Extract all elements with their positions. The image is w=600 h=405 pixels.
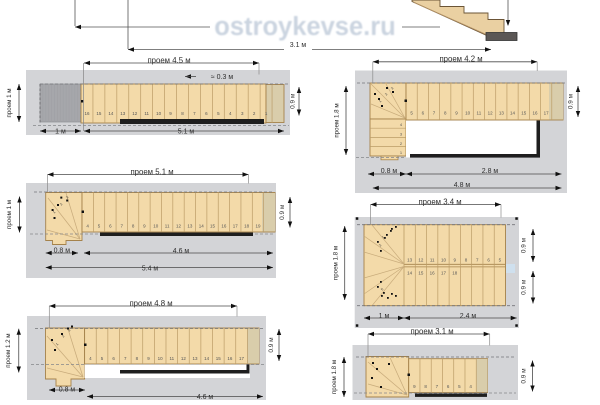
svg-text:проем 3.1 м: проем 3.1 м xyxy=(410,327,453,336)
svg-text:14: 14 xyxy=(199,224,205,229)
svg-text:проем 1.8 м: проем 1.8 м xyxy=(333,246,340,280)
svg-text:15: 15 xyxy=(418,271,424,276)
svg-text:0.9 м: 0.9 м xyxy=(521,279,528,295)
svg-text:0.8 м: 0.8 м xyxy=(54,248,71,255)
svg-text:12: 12 xyxy=(181,356,187,361)
svg-text:проем 1.8 м: проем 1.8 м xyxy=(334,103,341,137)
svg-text:1 м: 1 м xyxy=(55,129,66,136)
svg-text:0.9 м: 0.9 м xyxy=(521,368,528,384)
svg-text:проем 4.8 м: проем 4.8 м xyxy=(129,299,172,308)
svg-text:11: 11 xyxy=(169,356,174,361)
svg-text:14: 14 xyxy=(510,111,516,116)
svg-text:2.8 м: 2.8 м xyxy=(482,168,499,175)
svg-text:15: 15 xyxy=(521,111,527,116)
svg-text:5.4 м: 5.4 м xyxy=(142,266,159,273)
svg-text:16: 16 xyxy=(227,356,233,361)
svg-text:1 м: 1 м xyxy=(379,313,390,320)
svg-text:0.9 м: 0.9 м xyxy=(279,204,286,220)
svg-text:11: 11 xyxy=(165,224,170,229)
svg-text:10: 10 xyxy=(153,224,159,229)
svg-text:0.9 м: 0.9 м xyxy=(290,93,297,109)
svg-text:16: 16 xyxy=(221,224,227,229)
svg-text:15: 15 xyxy=(210,224,216,229)
svg-text:10: 10 xyxy=(156,111,162,116)
svg-text:17: 17 xyxy=(239,356,245,361)
svg-text:11: 11 xyxy=(430,258,435,263)
svg-text:12: 12 xyxy=(488,111,494,116)
svg-text:16: 16 xyxy=(84,111,90,116)
svg-text:проем 5.1 м: проем 5.1 м xyxy=(130,167,173,176)
svg-text:4.6 м: 4.6 м xyxy=(197,394,214,400)
svg-text:13: 13 xyxy=(193,356,199,361)
svg-text:12: 12 xyxy=(132,111,138,116)
svg-text:5.1 м: 5.1 м xyxy=(178,129,195,136)
svg-text:16: 16 xyxy=(430,271,436,276)
svg-text:0.8 м: 0.8 м xyxy=(59,387,76,394)
svg-text:15: 15 xyxy=(216,356,222,361)
svg-text:17: 17 xyxy=(233,224,239,229)
svg-text:17: 17 xyxy=(544,111,550,116)
svg-text:13: 13 xyxy=(187,224,193,229)
svg-text:проем 1 м: проем 1 м xyxy=(6,88,13,117)
svg-text:10: 10 xyxy=(465,111,471,116)
svg-text:проем 3.4 м: проем 3.4 м xyxy=(418,197,461,206)
svg-text:4.8 м: 4.8 м xyxy=(454,182,471,189)
svg-text:0.9 м: 0.9 м xyxy=(568,93,575,109)
svg-text:14: 14 xyxy=(204,356,210,361)
svg-text:проем 4.2 м: проем 4.2 м xyxy=(439,55,482,64)
svg-text:10: 10 xyxy=(441,258,447,263)
svg-text:2.4 м: 2.4 м xyxy=(460,313,477,320)
svg-text:13: 13 xyxy=(120,111,126,116)
svg-text:16: 16 xyxy=(532,111,538,116)
svg-text:14: 14 xyxy=(108,111,114,116)
svg-text:0.9 м: 0.9 м xyxy=(521,237,528,253)
svg-text:3.1 м: 3.1 м xyxy=(290,42,307,49)
svg-text:проем 4.5 м: проем 4.5 м xyxy=(147,56,190,65)
svg-text:18: 18 xyxy=(244,224,250,229)
svg-text:проем 1.8 м: проем 1.8 м xyxy=(331,360,338,394)
svg-text:11: 11 xyxy=(144,111,149,116)
svg-text:12: 12 xyxy=(418,258,424,263)
svg-text:14: 14 xyxy=(407,271,413,276)
svg-text:0.9 м: 0.9 м xyxy=(268,337,275,353)
svg-text:≈ 0.3 м: ≈ 0.3 м xyxy=(211,74,233,81)
svg-text:11: 11 xyxy=(477,111,482,116)
svg-text:4.6 м: 4.6 м xyxy=(173,248,190,255)
svg-text:15: 15 xyxy=(96,111,102,116)
svg-text:19: 19 xyxy=(255,224,261,229)
svg-text:17: 17 xyxy=(441,271,447,276)
svg-text:10: 10 xyxy=(158,356,164,361)
svg-text:13: 13 xyxy=(499,111,505,116)
svg-text:12: 12 xyxy=(176,224,182,229)
svg-text:0.8 м: 0.8 м xyxy=(381,168,398,175)
svg-text:проем 1 м: проем 1 м xyxy=(6,200,13,229)
svg-text:13: 13 xyxy=(407,258,413,263)
svg-text:ostroykevse.ru: ostroykevse.ru xyxy=(214,13,395,41)
svg-text:18: 18 xyxy=(452,271,458,276)
svg-text:проем 1.2 м: проем 1.2 м xyxy=(5,333,12,367)
